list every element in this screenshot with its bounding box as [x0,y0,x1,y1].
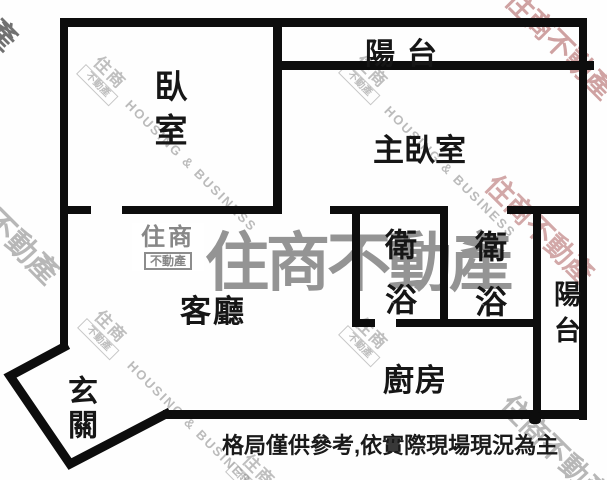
room-label-bedroom: 臥室 [144,69,192,157]
floor-plan: 不動產 住商不動產 住商不動產 住商不動產 住商不動產 HOUSING & BU… [0,0,607,480]
room-label-living-room: 客廳 [180,286,246,331]
room-label-balcony-top: 陽台 [365,29,449,73]
room-label-entry: 玄關 [57,375,101,443]
room-label-bathroom-2: 衛浴 [466,230,512,340]
room-label-kitchen: 廚房 [383,355,447,400]
room-label-bathroom-1: 衛浴 [376,228,422,338]
disclaimer-text: 格局僅供參考,依實際現場現況為主 [222,428,558,460]
room-label-balcony-right: 陽台 [546,280,585,352]
room-label-master-bedroom: 主臥室 [373,125,466,170]
